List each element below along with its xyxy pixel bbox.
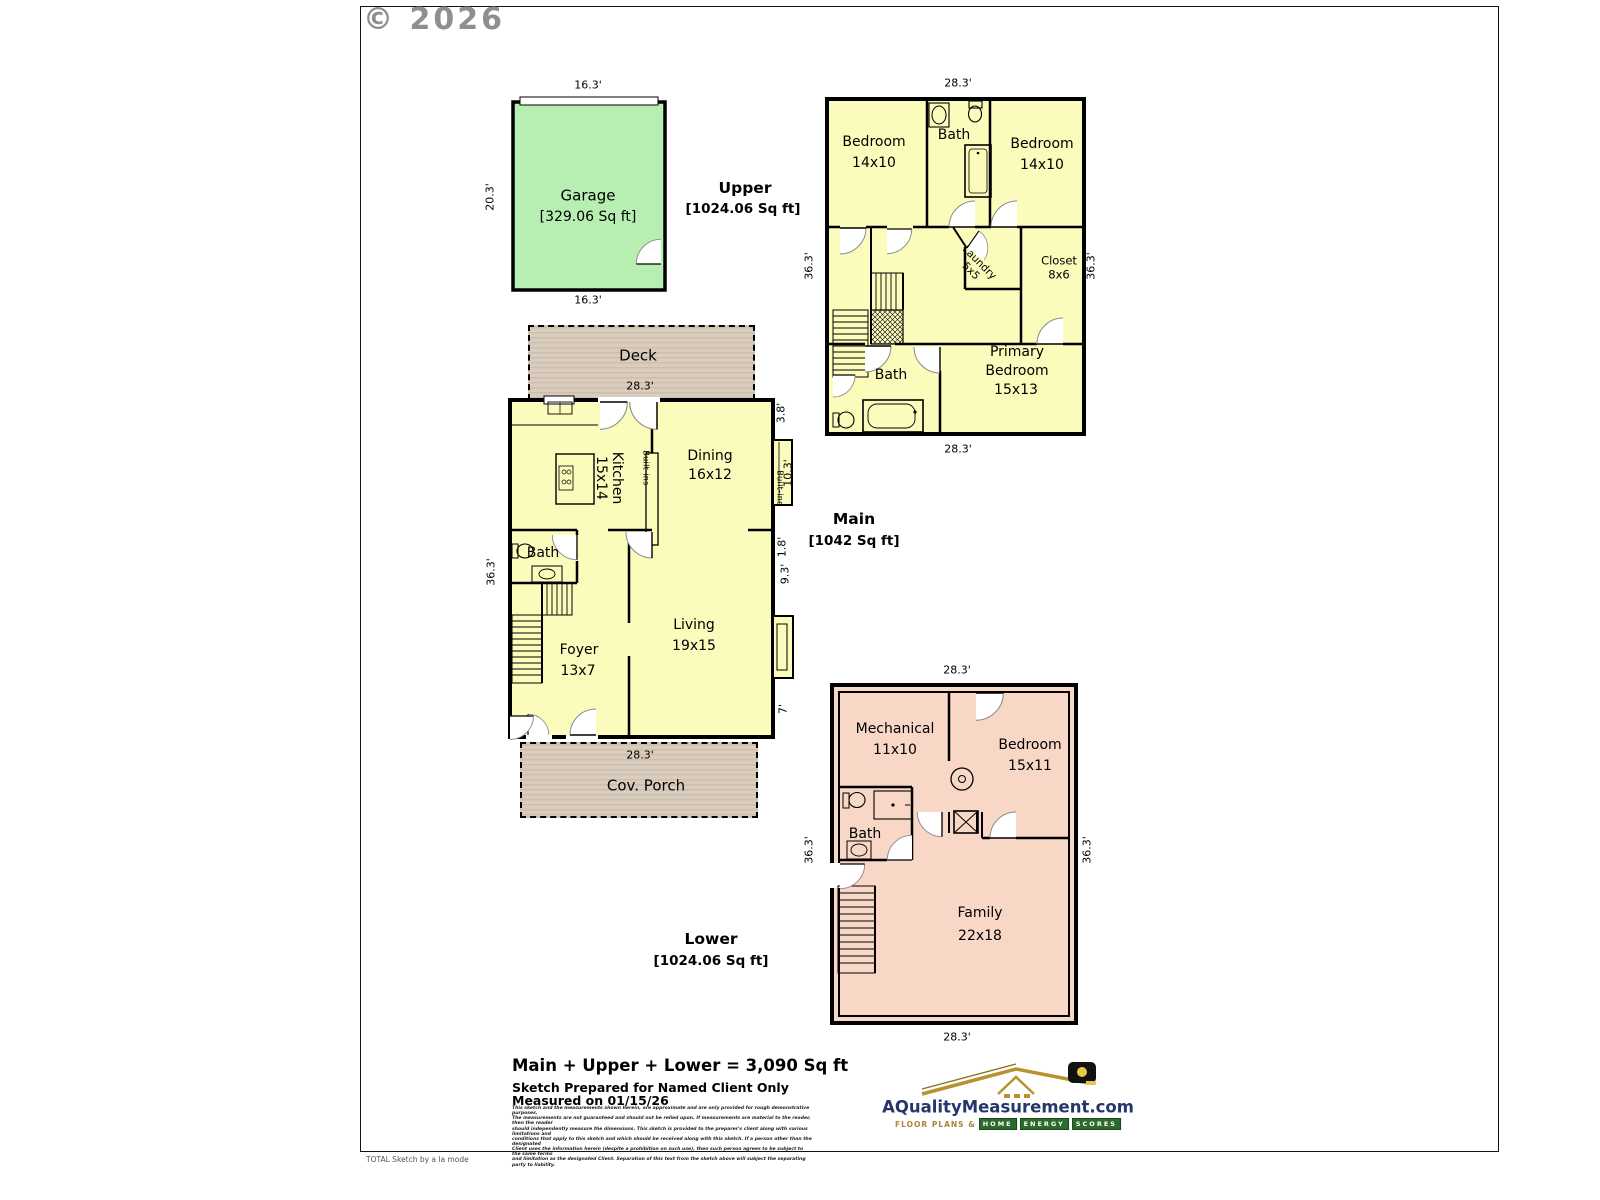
tagline-prefix: Floor Plans &	[895, 1120, 976, 1129]
garage-door-icon	[520, 97, 658, 105]
main-dim-left: 36.3'	[486, 558, 499, 586]
room-label-family: Family	[957, 905, 1002, 921]
window-icon	[544, 396, 574, 404]
company-logo	[920, 1058, 1097, 1098]
main-dim-top: 28.3'	[626, 381, 654, 394]
room-size-dining: 16x12	[688, 467, 732, 483]
lower-dim-right: 36.3'	[1082, 836, 1095, 864]
main-title: Main	[833, 511, 875, 529]
garage-dim-bottom: 16.3'	[574, 295, 602, 308]
room-label-bedroom-right: Bedroom	[1010, 136, 1073, 152]
room-label-bedroom-left: Bedroom	[842, 134, 905, 150]
disclaimer-line: conditions that apply to this sketch and…	[512, 1137, 812, 1147]
room-label-kitchen: Kitchen 15x14	[593, 452, 625, 505]
room-size-primary: 15x13	[994, 382, 1038, 398]
logo-tagline: Floor Plans & Home Energy Scores	[895, 1118, 1121, 1130]
disclaimer-line: The measurements are not guaranteed and …	[512, 1116, 812, 1126]
room-label-primary-2: Bedroom	[985, 363, 1048, 379]
room-label-primary-1: Primary	[990, 344, 1044, 360]
disclaimer-text: This sketch and the measurements shown h…	[512, 1106, 812, 1168]
upper-dim-bottom: 28.3'	[944, 444, 972, 457]
garage-room-label: Garage	[561, 187, 616, 204]
lower-dim-bottom: 28.3'	[943, 1032, 971, 1045]
main-dim-r1: 3.8'	[776, 403, 789, 424]
tagline-word-home: Home	[979, 1118, 1017, 1130]
room-size-bedroom-right: 14x10	[1020, 157, 1064, 173]
floorplan-sketch-page: { "page": { "copyright": "© 2026", "cred…	[0, 0, 1600, 1200]
room-size-closet: 8x6	[1048, 268, 1069, 281]
room-label-bath-main: Bath	[527, 545, 560, 561]
entry-door-opening	[829, 863, 840, 888]
room-size-bedroom-left: 14x10	[852, 155, 896, 171]
disclaimer-line: and limitation as the designated Client.…	[512, 1157, 812, 1167]
garage-dim-top: 16.3'	[574, 80, 602, 93]
main-sqft: [1042 Sq ft]	[808, 534, 899, 550]
porch-label: Cov. Porch	[607, 777, 685, 794]
upper-sqft: [1024.06 Sq ft]	[686, 202, 801, 218]
room-size-foyer: 13x7	[560, 663, 595, 679]
main-outline	[508, 398, 800, 741]
room-size-bedroom-lower: 15x11	[1008, 758, 1052, 774]
room-size-mechanical: 11x10	[873, 742, 917, 758]
software-credit: TOTAL Sketch by a la mode	[366, 1155, 469, 1164]
tape-measure-house-icon	[920, 1058, 1097, 1098]
lower-dim-left: 36.3'	[804, 836, 817, 864]
room-label-dining: Dining	[687, 448, 732, 464]
disclaimer-line: should independently measure the dimensi…	[512, 1127, 812, 1137]
fireplace-icon	[773, 616, 793, 678]
builtins-label-1: Built-ins	[641, 450, 650, 485]
room-label-bath-upper2: Bath	[875, 367, 908, 383]
disclaimer-line: This sketch and the measurements shown h…	[512, 1106, 812, 1116]
room-label-bath-lower: Bath	[849, 826, 882, 842]
tagline-word-scores: Scores	[1072, 1118, 1121, 1130]
main-dim-r3: 1.8'	[777, 537, 790, 558]
main-dim-r4: 9.3'	[780, 564, 793, 585]
builtins-label-2: Built-ins	[775, 470, 784, 505]
kitchen-name: Kitchen	[609, 452, 625, 505]
upper-dim-right: 36.3'	[1086, 252, 1099, 280]
lower-title: Lower	[684, 931, 737, 949]
room-label-living: Living	[673, 617, 715, 633]
room-label-mechanical: Mechanical	[856, 721, 935, 737]
lower-sqft: [1024.06 Sq ft]	[654, 954, 769, 970]
logo-domain-text: AQualityMeasurement.com	[882, 1098, 1134, 1117]
upper-dim-left: 36.3'	[804, 252, 817, 280]
main-dim-bottom: 28.3'	[626, 750, 654, 763]
upper-dim-top: 28.3'	[944, 78, 972, 91]
room-label-bedroom-lower: Bedroom	[998, 737, 1061, 753]
room-label-foyer: Foyer	[560, 642, 599, 658]
garage-dim-left: 20.3'	[485, 183, 498, 211]
deck-label: Deck	[619, 347, 657, 364]
room-size-living: 19x15	[672, 638, 716, 654]
kitchen-size: 15x14	[593, 452, 609, 505]
garage-sqft-label: [329.06 Sq ft]	[540, 209, 637, 225]
tagline-word-energy: Energy	[1020, 1118, 1069, 1130]
main-dim-r5: 7'	[778, 704, 791, 714]
disclaimer-line: Client uses the information herein (desp…	[512, 1147, 812, 1157]
room-label-bath-upper: Bath	[938, 127, 971, 143]
main-plan	[508, 398, 800, 741]
room-size-family: 22x18	[958, 928, 1002, 944]
upper-title: Upper	[719, 180, 772, 198]
stairs-landing-hatch	[871, 310, 903, 344]
room-label-closet: Closet	[1041, 254, 1077, 267]
total-sqft-line: Main + Upper + Lower = 3,090 Sq ft	[512, 1056, 848, 1075]
porch-door-opening	[526, 734, 552, 741]
lower-dim-top: 28.3'	[943, 665, 971, 678]
copyright-stamp: © 2026	[363, 2, 505, 37]
